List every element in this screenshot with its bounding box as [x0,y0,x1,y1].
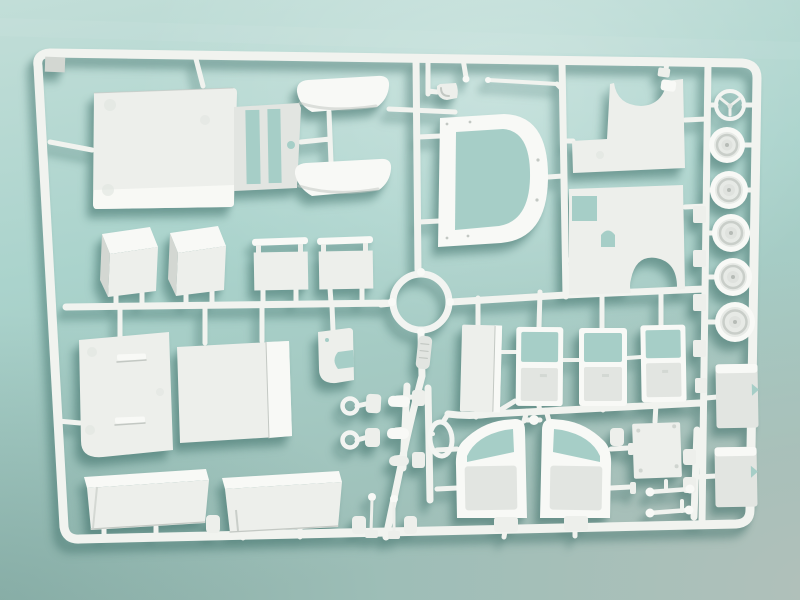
road-wheel [709,127,745,163]
seat-box-right: Seat base box [168,226,226,296]
rail-pad [352,516,366,534]
foot-pad [564,516,588,531]
van-door [640,325,686,403]
road-wheel [710,171,748,209]
sprue-photo-svg: Plastic model kit sprue photograph White… [0,0,800,600]
folded-panel: Folded floor panel [177,341,292,443]
gate-nub [628,443,634,455]
rear-block-top: Notched rear panel block [715,364,759,429]
tiny-pad [657,67,670,78]
seat-shell-top: Curved seat shell [297,76,389,112]
sprue-photo: Plastic model kit sprue photograph White… [0,0,800,600]
van-door [579,328,627,406]
cargo-tray-left: Folded cargo tray [84,469,209,530]
rail-pad [206,515,220,533]
windshield-frame: Windscreen frame with rounded opening [438,114,548,247]
corner-gusset [45,57,66,73]
bulkhead-panel: Bulkhead panel with two grab handles [79,332,173,457]
rod-knob [485,77,491,83]
road-wheel [715,302,755,342]
foot-pad [494,517,518,532]
seat-box-left: Seat base box [100,227,158,297]
bracket: Mounting bracket with cut-out [318,328,354,383]
cargo-tray-right: Folded cargo tray [222,471,342,533]
van-door [516,327,564,406]
gate-nub [630,482,636,494]
stub-knob [463,76,470,83]
van-doors: Van door with window opening [516,325,687,407]
rail-pad [404,516,417,534]
access-panel: Square access panel [632,422,682,479]
seat-shell-bottom: Curved seat shell [295,159,391,196]
rear-block-bottom: Notched rear panel block [714,447,758,508]
road-wheel [714,258,752,296]
tiny-pad [660,79,676,92]
gate-knob [529,415,539,425]
small-pad [610,428,624,446]
side-panel: Narrow side panel [460,325,502,413]
road-wheel [712,214,750,252]
